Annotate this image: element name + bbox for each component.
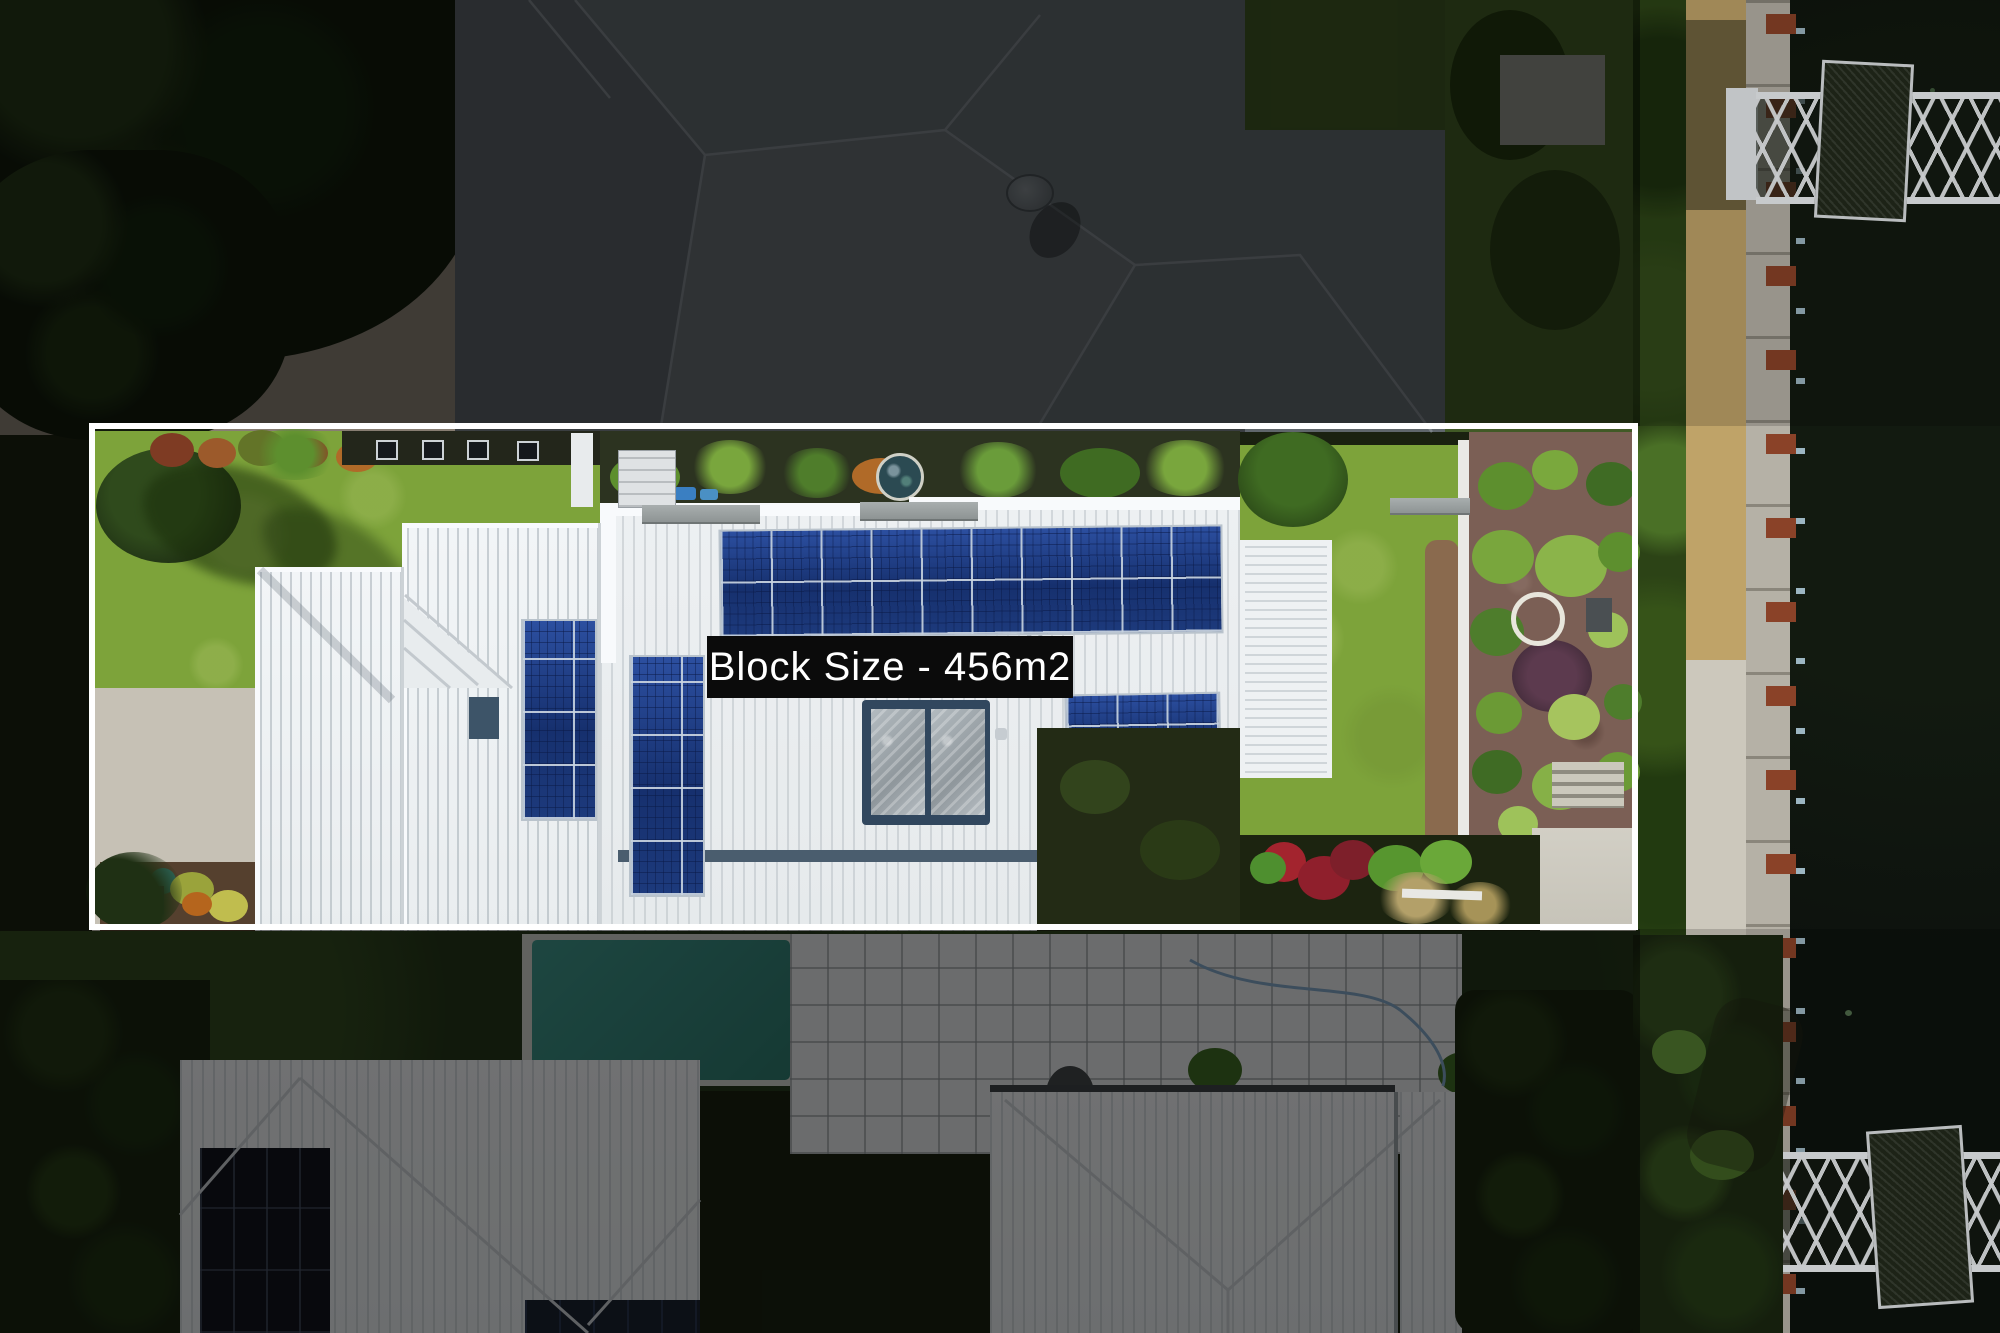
dim-mask-bottom (0, 929, 1640, 1333)
dim-mask-left (0, 426, 90, 929)
dim-mask-right-top (1640, 0, 2000, 426)
block-size-label: Block Size - 456m2 (707, 636, 1073, 698)
aerial-photo: Block Size - 456m2 (0, 0, 2000, 1333)
dim-mask-right-bottom (1640, 929, 2000, 1333)
block-size-label-text: Block Size - 456m2 (709, 645, 1072, 690)
dim-mask-top (0, 0, 1640, 426)
